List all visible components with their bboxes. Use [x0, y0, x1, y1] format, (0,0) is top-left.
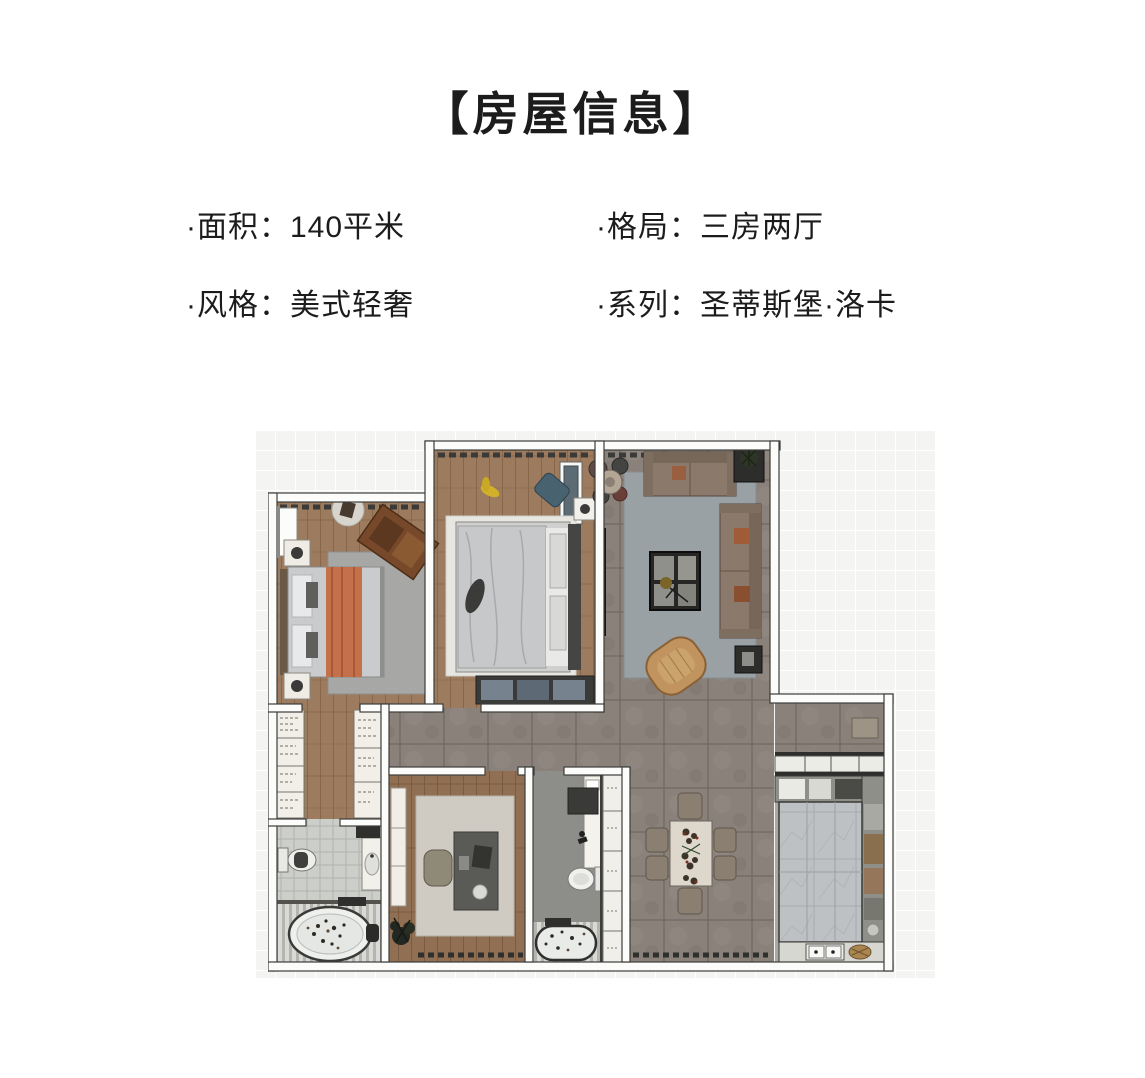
wall-corridor-right [381, 704, 389, 962]
toilet [568, 867, 602, 891]
info-area: ·面积：140平米 [186, 202, 596, 246]
coffee-table [650, 552, 700, 610]
headboard [280, 569, 288, 675]
info-series: ·系列：圣蒂斯堡·洛卡 [596, 280, 897, 324]
desk-chair [424, 850, 452, 886]
wall-mid [360, 704, 443, 712]
info-style: ·风格：美式轻奢 [186, 280, 596, 324]
kitchen [775, 718, 888, 962]
counter-bottom [779, 942, 885, 962]
faucet [366, 924, 379, 942]
notepad [459, 856, 469, 870]
house-info-card: 【房屋信息】 ·面积：140平米 ·格局：三房两厅 ·风格：美式轻奢 ·系列：圣… [0, 78, 1145, 324]
bathtub [532, 918, 600, 962]
wall-mid [481, 704, 604, 712]
window-sill [277, 506, 280, 558]
wall-mid [268, 704, 302, 712]
headboard [568, 524, 581, 670]
wall-left [268, 493, 277, 971]
floor-plan [255, 430, 935, 978]
tub-tray [338, 897, 366, 906]
wall-hall-bottom [564, 767, 630, 775]
info-layout: ·格局：三房两厅 [596, 202, 897, 246]
shelf [356, 826, 380, 838]
window-frame-top [775, 752, 888, 756]
vanity [362, 838, 382, 890]
bed [456, 522, 581, 672]
wall-cabinet-dining [622, 767, 630, 962]
wall-closet-bath [268, 819, 306, 826]
hallway-floor [385, 708, 604, 771]
wall-hall-bottom [389, 767, 485, 775]
floor-plan-drawing [268, 436, 898, 977]
bed [280, 567, 384, 677]
lamp [291, 680, 303, 692]
appliance-box [852, 718, 878, 738]
cushion [306, 582, 318, 608]
dining-table [670, 821, 712, 886]
wall-bottom [268, 962, 893, 971]
pillow [550, 534, 566, 588]
window-frame-bottom [775, 772, 888, 776]
toilet [278, 848, 316, 872]
wall-master-living [595, 441, 604, 712]
bookshelf [391, 788, 406, 906]
wall-study-bath2 [525, 767, 533, 962]
wardrobe-right [354, 710, 382, 818]
plant-side-table [734, 448, 764, 482]
bench [476, 676, 594, 704]
pillow [550, 596, 566, 650]
lamp [291, 547, 303, 559]
desk [454, 832, 498, 910]
wood-cabinet [864, 868, 883, 894]
page-title: 【房屋信息】 [0, 78, 1145, 144]
pot [867, 924, 879, 936]
throw-pillow [734, 528, 750, 544]
gold-bowl [660, 577, 672, 589]
side-table [735, 646, 762, 673]
wall-bedroom2-master [425, 441, 434, 712]
sofa-right [720, 504, 761, 638]
sofa-top [644, 452, 736, 496]
wall-living-right [770, 441, 779, 702]
wall-right [884, 694, 893, 971]
linen-cabinet [600, 771, 622, 962]
counter-right [862, 776, 885, 942]
desk-tray [473, 885, 487, 899]
wall-extension-top [770, 694, 893, 703]
cushion [306, 632, 318, 658]
wall-closet-bath [340, 819, 385, 826]
info-list: ·面积：140平米 ·格局：三房两厅 ·风格：美式轻奢 ·系列：圣蒂斯堡·洛卡 [0, 202, 1145, 324]
wood-cabinet [864, 834, 883, 864]
laptop [472, 845, 493, 869]
wall-top-bedroom2 [268, 493, 430, 502]
lamp [580, 504, 590, 514]
foot-rail [380, 567, 384, 677]
throw-pillow [672, 466, 686, 480]
throw-pillow [734, 586, 750, 602]
wardrobe-left [276, 710, 304, 818]
